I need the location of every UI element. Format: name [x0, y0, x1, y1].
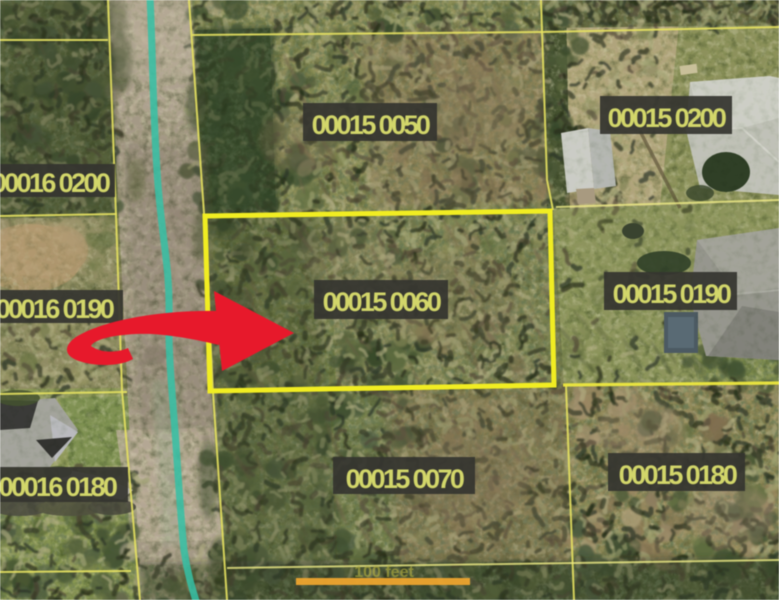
svg-text:00015 0180: 00015 0180 — [619, 460, 737, 490]
svg-text:00015 0070: 00015 0070 — [346, 464, 464, 494]
svg-text:00016 0200: 00016 0200 — [0, 168, 110, 198]
svg-text:00016 0180: 00016 0180 — [0, 472, 117, 502]
svg-text:00016 0190: 00016 0190 — [0, 294, 114, 324]
svg-text:00015 0060: 00015 0060 — [323, 287, 441, 317]
svg-text:00015 0190: 00015 0190 — [613, 279, 731, 309]
svg-text:00015 0050: 00015 0050 — [312, 110, 430, 140]
svg-text:100 feet: 100 feet — [354, 564, 414, 581]
svg-text:00015 0200: 00015 0200 — [608, 103, 726, 133]
